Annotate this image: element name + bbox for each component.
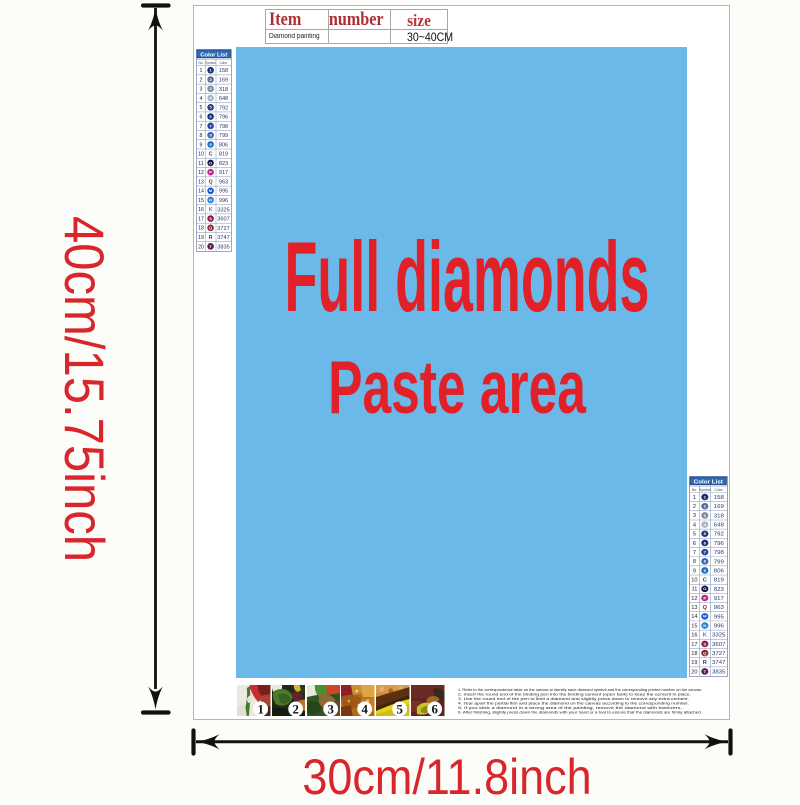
svg-text:648: 648 xyxy=(219,96,228,102)
svg-text:806: 806 xyxy=(714,569,724,575)
svg-text:17: 17 xyxy=(198,216,204,222)
svg-text:996: 996 xyxy=(714,624,724,630)
svg-text:19: 19 xyxy=(691,660,697,666)
svg-text:K: K xyxy=(703,633,707,639)
svg-text:3747: 3747 xyxy=(217,235,229,241)
svg-text:798: 798 xyxy=(219,124,228,130)
svg-text:1. Refer to the correspond: 1. Refer to the correspondence table on … xyxy=(458,688,702,692)
svg-text:3: 3 xyxy=(693,513,696,519)
svg-text:2. Insert the round end o: 2. Insert the round end of the binding p… xyxy=(458,692,691,696)
svg-text:20: 20 xyxy=(691,669,697,675)
svg-text:No.: No. xyxy=(199,61,204,65)
svg-text:819: 819 xyxy=(219,152,228,158)
svg-text:17: 17 xyxy=(691,642,697,648)
svg-text:10: 10 xyxy=(198,152,204,158)
svg-text:823: 823 xyxy=(219,161,228,167)
svg-text:318: 318 xyxy=(714,514,724,520)
svg-text:823: 823 xyxy=(714,587,724,593)
svg-text:P: P xyxy=(703,596,706,601)
svg-text:S: S xyxy=(703,641,706,646)
svg-text:806: 806 xyxy=(219,142,228,148)
svg-text:995: 995 xyxy=(219,189,228,195)
svg-text:18: 18 xyxy=(691,651,697,657)
svg-text:M: M xyxy=(703,614,707,619)
svg-text:5: 5 xyxy=(397,703,403,716)
svg-text:4: 4 xyxy=(693,523,696,529)
svg-text:12: 12 xyxy=(691,596,697,602)
svg-text:13: 13 xyxy=(691,605,697,611)
svg-text:3727: 3727 xyxy=(217,226,229,232)
svg-text:K: K xyxy=(209,207,213,213)
svg-text:798: 798 xyxy=(714,550,724,556)
svg-text:4: 4 xyxy=(362,703,369,716)
svg-text:2: 2 xyxy=(200,77,203,83)
svg-text:4. Tear apart the partial: 4. Tear apart the partial film and place… xyxy=(458,701,689,705)
svg-text:3. Use the round end of: 3. Use the round end of the pen to limit… xyxy=(458,697,689,701)
svg-text:14: 14 xyxy=(691,614,697,620)
svg-text:3325: 3325 xyxy=(217,207,229,213)
svg-text:3607: 3607 xyxy=(217,217,229,223)
svg-text:2: 2 xyxy=(693,504,696,510)
svg-text:9: 9 xyxy=(200,142,203,148)
svg-text:No.: No. xyxy=(692,488,697,492)
svg-text:19: 19 xyxy=(198,235,204,241)
svg-text:15: 15 xyxy=(198,198,204,204)
svg-text:3727: 3727 xyxy=(712,651,725,657)
svg-text:15: 15 xyxy=(691,624,697,630)
svg-text:Q: Q xyxy=(703,605,707,611)
svg-text:Q: Q xyxy=(209,179,213,185)
svg-text:6: 6 xyxy=(693,541,696,547)
svg-text:1: 1 xyxy=(200,68,203,74)
svg-text:3: 3 xyxy=(200,87,203,93)
svg-text:318: 318 xyxy=(219,87,228,93)
svg-text:799: 799 xyxy=(219,133,228,139)
svg-text:5: 5 xyxy=(693,532,696,538)
svg-text:796: 796 xyxy=(714,541,724,547)
svg-text:1: 1 xyxy=(257,703,263,716)
svg-text:8: 8 xyxy=(200,133,203,139)
svg-text:6: 6 xyxy=(431,703,438,716)
svg-text:792: 792 xyxy=(219,105,228,111)
svg-text:3835: 3835 xyxy=(217,244,229,250)
svg-text:18: 18 xyxy=(198,226,204,232)
svg-text:N: N xyxy=(703,623,706,628)
svg-text:3607: 3607 xyxy=(712,642,725,648)
svg-text:C: C xyxy=(209,152,213,158)
svg-text:996: 996 xyxy=(219,198,228,204)
svg-text:917: 917 xyxy=(219,170,228,176)
svg-text:799: 799 xyxy=(714,559,724,565)
svg-text:16: 16 xyxy=(198,207,204,213)
svg-text:963: 963 xyxy=(714,605,724,611)
svg-text:158: 158 xyxy=(219,68,228,74)
svg-text:Color List: Color List xyxy=(694,480,723,486)
svg-text:16: 16 xyxy=(691,633,697,639)
svg-text:8: 8 xyxy=(693,559,696,565)
svg-text:7: 7 xyxy=(200,124,203,130)
svg-text:5. If you stick a diamond: 5. If you stick a diamond in a wrong are… xyxy=(458,706,682,710)
svg-text:Color List: Color List xyxy=(200,52,227,58)
svg-text:6. After finishing, slightl: 6. After finishing, slightly press down … xyxy=(458,711,702,715)
svg-text:169: 169 xyxy=(219,78,228,84)
svg-text:4: 4 xyxy=(200,96,203,102)
svg-text:14: 14 xyxy=(198,189,204,195)
svg-text:Color: Color xyxy=(714,488,723,492)
svg-text:C: C xyxy=(703,578,707,584)
svg-text:R: R xyxy=(703,660,707,666)
svg-text:995: 995 xyxy=(714,615,724,621)
svg-text:169: 169 xyxy=(714,504,724,510)
svg-text:917: 917 xyxy=(714,596,724,602)
svg-text:3747: 3747 xyxy=(712,660,725,666)
svg-text:7: 7 xyxy=(693,550,696,556)
svg-text:819: 819 xyxy=(714,578,724,584)
svg-text:13: 13 xyxy=(198,179,204,185)
svg-text:N: N xyxy=(209,197,212,202)
svg-text:11: 11 xyxy=(691,587,697,593)
svg-text:792: 792 xyxy=(714,532,724,538)
svg-text:963: 963 xyxy=(219,179,228,185)
svg-text:Symbol: Symbol xyxy=(205,61,216,65)
svg-text:10: 10 xyxy=(691,578,697,584)
svg-text:648: 648 xyxy=(714,523,724,529)
svg-text:158: 158 xyxy=(714,495,724,501)
svg-text:3: 3 xyxy=(327,703,333,716)
svg-text:O: O xyxy=(209,160,212,165)
svg-text:12: 12 xyxy=(198,170,204,176)
svg-text:Symbol: Symbol xyxy=(699,488,711,492)
svg-text:11: 11 xyxy=(198,161,203,167)
svg-text:P: P xyxy=(209,170,212,175)
svg-text:2: 2 xyxy=(292,703,298,716)
svg-text:3325: 3325 xyxy=(712,633,725,639)
svg-text:R: R xyxy=(209,235,213,241)
svg-text:3835: 3835 xyxy=(712,670,725,676)
svg-text:Color: Color xyxy=(219,61,228,65)
svg-text:20: 20 xyxy=(198,244,204,250)
svg-text:S: S xyxy=(209,216,212,221)
svg-text:1: 1 xyxy=(693,495,696,501)
svg-text:6: 6 xyxy=(200,114,203,120)
svg-text:9: 9 xyxy=(693,569,696,575)
svg-text:5: 5 xyxy=(200,105,203,111)
svg-text:Q: Q xyxy=(209,225,212,230)
svg-text:796: 796 xyxy=(219,115,228,121)
